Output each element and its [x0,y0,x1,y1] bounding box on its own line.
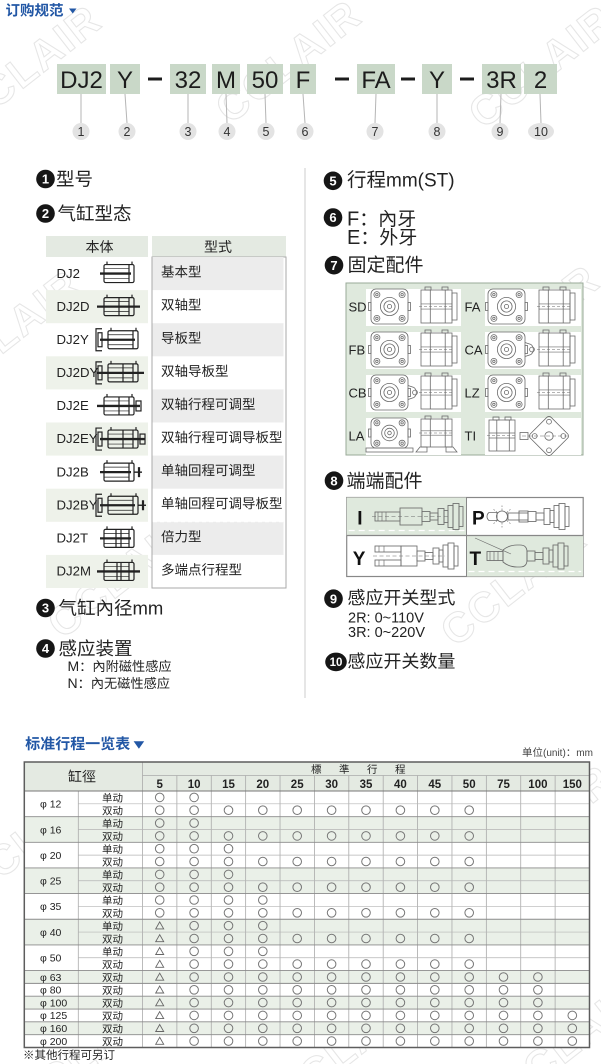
svg-text:DJ2E: DJ2E [57,398,89,413]
svg-text:8: 8 [434,125,441,139]
svg-text:6: 6 [329,210,336,225]
svg-text:40: 40 [394,779,407,791]
svg-text:DJ2: DJ2 [60,67,103,94]
svg-text:7: 7 [330,258,337,273]
svg-text:DJ2T: DJ2T [57,531,89,546]
svg-text:3: 3 [42,601,49,616]
svg-text:φ 160: φ 160 [40,1023,67,1035]
svg-text:9: 9 [497,125,504,139]
svg-text:50: 50 [463,779,476,791]
svg-text:(unit): (unit) [543,748,566,759]
svg-text:DJ2BY: DJ2BY [57,497,98,512]
svg-text:N: N [68,675,78,691]
svg-text:Y: Y [353,549,366,570]
svg-text:1: 1 [42,172,49,187]
svg-text:25: 25 [291,779,304,791]
svg-text:2: 2 [534,67,547,94]
svg-text:3: 3 [185,125,192,139]
svg-text:φ 200: φ 200 [40,1036,67,1048]
svg-text:100: 100 [528,779,547,791]
svg-text:FA: FA [465,300,481,315]
svg-text:I: I [357,509,362,530]
svg-text:mm(ST): mm(ST) [386,171,455,192]
svg-text:T: T [470,549,482,570]
svg-text:4: 4 [224,125,231,139]
svg-text:LA: LA [349,429,365,444]
svg-text:150: 150 [563,779,582,791]
svg-text:9: 9 [330,591,337,606]
svg-text:TI: TI [465,429,477,444]
svg-text:φ 50: φ 50 [40,953,62,965]
svg-text:4: 4 [42,641,50,656]
svg-text:45: 45 [428,779,441,791]
svg-text:5: 5 [156,779,163,791]
svg-text:M: M [216,67,236,94]
svg-text:LZ: LZ [465,386,480,401]
svg-text:φ 16: φ 16 [40,824,62,836]
svg-text:mm: mm [133,598,164,619]
svg-text:2: 2 [124,125,131,139]
svg-text:E: E [347,227,360,249]
svg-text:32: 32 [175,67,202,94]
svg-text:3R: 3R [486,67,517,94]
svg-text:φ 63: φ 63 [40,972,62,984]
svg-text:DJ2EY: DJ2EY [57,431,98,446]
svg-text:1: 1 [78,125,85,139]
svg-text:75: 75 [497,779,510,791]
svg-text:Y: Y [117,67,133,94]
svg-text:DJ2M: DJ2M [57,564,91,579]
svg-text:7: 7 [372,125,379,139]
svg-text:φ 40: φ 40 [40,927,62,939]
svg-text:DJ2B: DJ2B [57,464,89,479]
svg-text:15: 15 [222,779,235,791]
svg-text:10: 10 [188,779,201,791]
svg-text:φ 35: φ 35 [40,901,62,913]
svg-text:φ 20: φ 20 [40,850,62,862]
svg-text:φ 125: φ 125 [40,1010,67,1022]
svg-text:FA: FA [361,67,390,94]
svg-text:Y: Y [429,67,445,94]
svg-text:φ 100: φ 100 [40,997,67,1009]
svg-text:FB: FB [349,343,366,358]
svg-text:M: M [68,658,80,674]
svg-text:DJ2: DJ2 [57,266,80,281]
svg-text:50: 50 [252,67,279,94]
svg-text:3R: 0~220V: 3R: 0~220V [348,625,425,641]
svg-text:6: 6 [302,125,309,139]
svg-text:2: 2 [42,206,49,221]
svg-text:20: 20 [256,779,269,791]
svg-text:5: 5 [263,125,270,139]
svg-text:φ 25: φ 25 [40,876,62,888]
svg-text:CB: CB [349,386,367,401]
svg-text:DJ2Y: DJ2Y [57,332,89,347]
svg-text:DJ2DY: DJ2DY [57,365,99,380]
svg-text:35: 35 [360,779,373,791]
svg-text:10: 10 [534,125,548,139]
svg-text:mm: mm [576,748,593,759]
svg-text:10: 10 [330,657,343,669]
svg-text:CA: CA [465,343,483,358]
svg-text:φ 80: φ 80 [40,985,62,997]
svg-text:DJ2D: DJ2D [57,299,90,314]
svg-text:P: P [472,509,485,530]
svg-text:SD: SD [349,300,367,315]
svg-text:φ 12: φ 12 [40,799,62,811]
svg-text:F: F [296,67,311,94]
svg-text:30: 30 [325,779,338,791]
svg-text:5: 5 [329,173,336,188]
svg-text:8: 8 [330,473,337,488]
